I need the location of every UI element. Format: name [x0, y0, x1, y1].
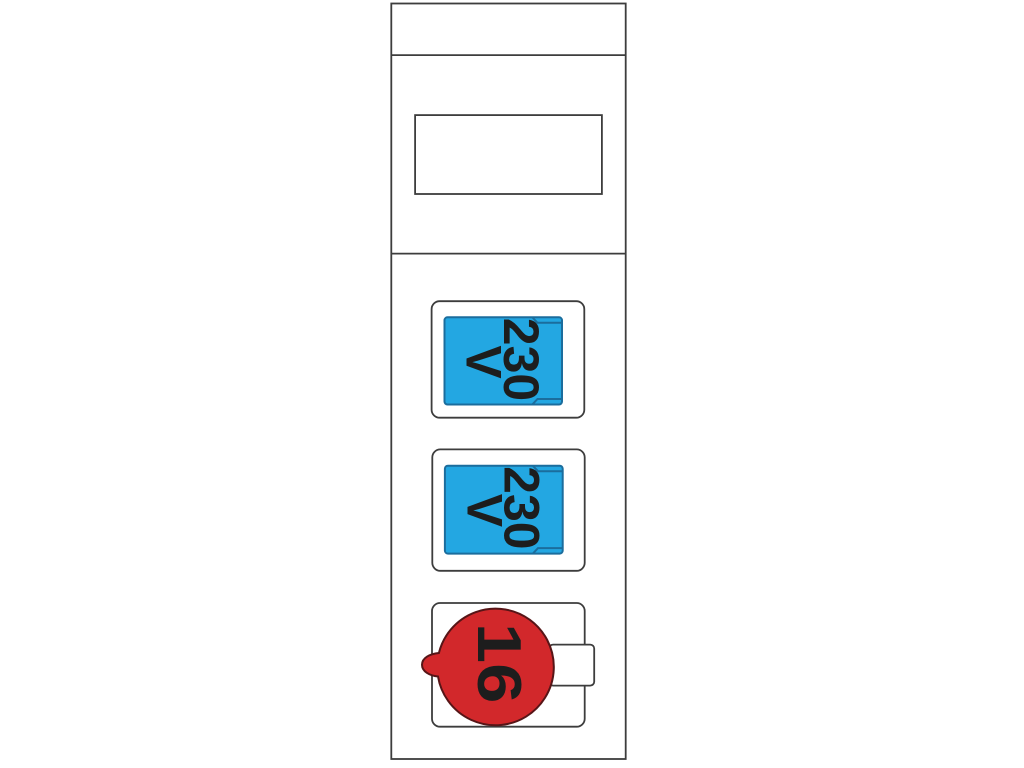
- svg-text:16: 16: [464, 623, 533, 704]
- svg-text:V: V: [456, 345, 512, 379]
- svg-text:V: V: [456, 494, 512, 528]
